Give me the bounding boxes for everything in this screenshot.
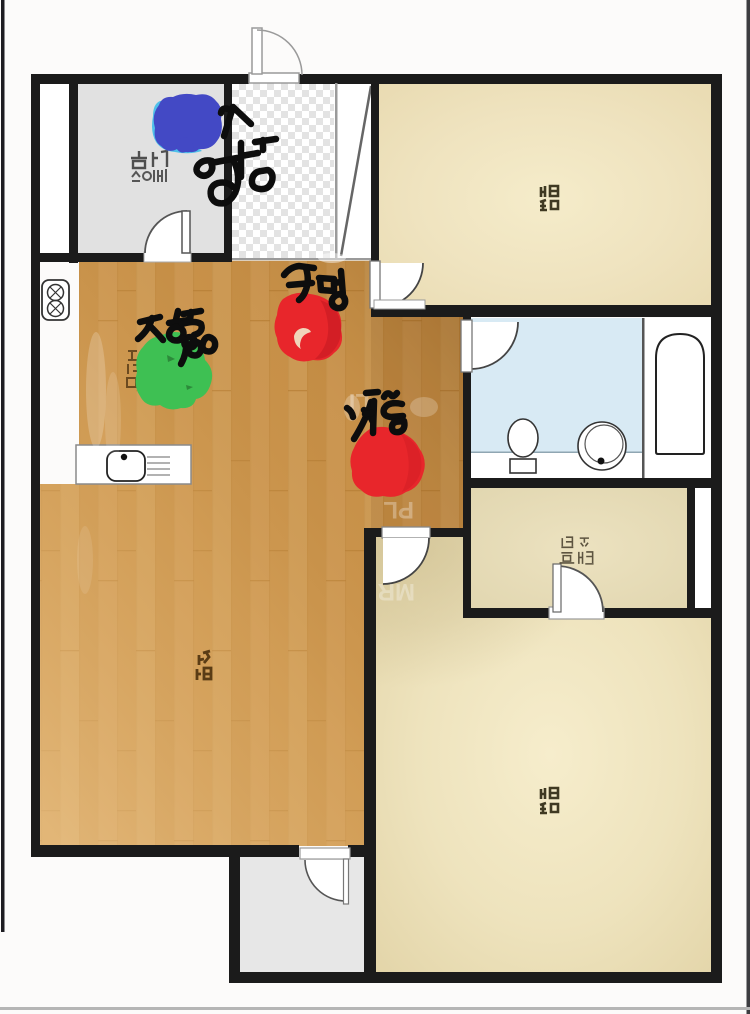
svg-text:PL: PL	[383, 496, 414, 523]
svg-text:MR: MR	[378, 578, 415, 605]
